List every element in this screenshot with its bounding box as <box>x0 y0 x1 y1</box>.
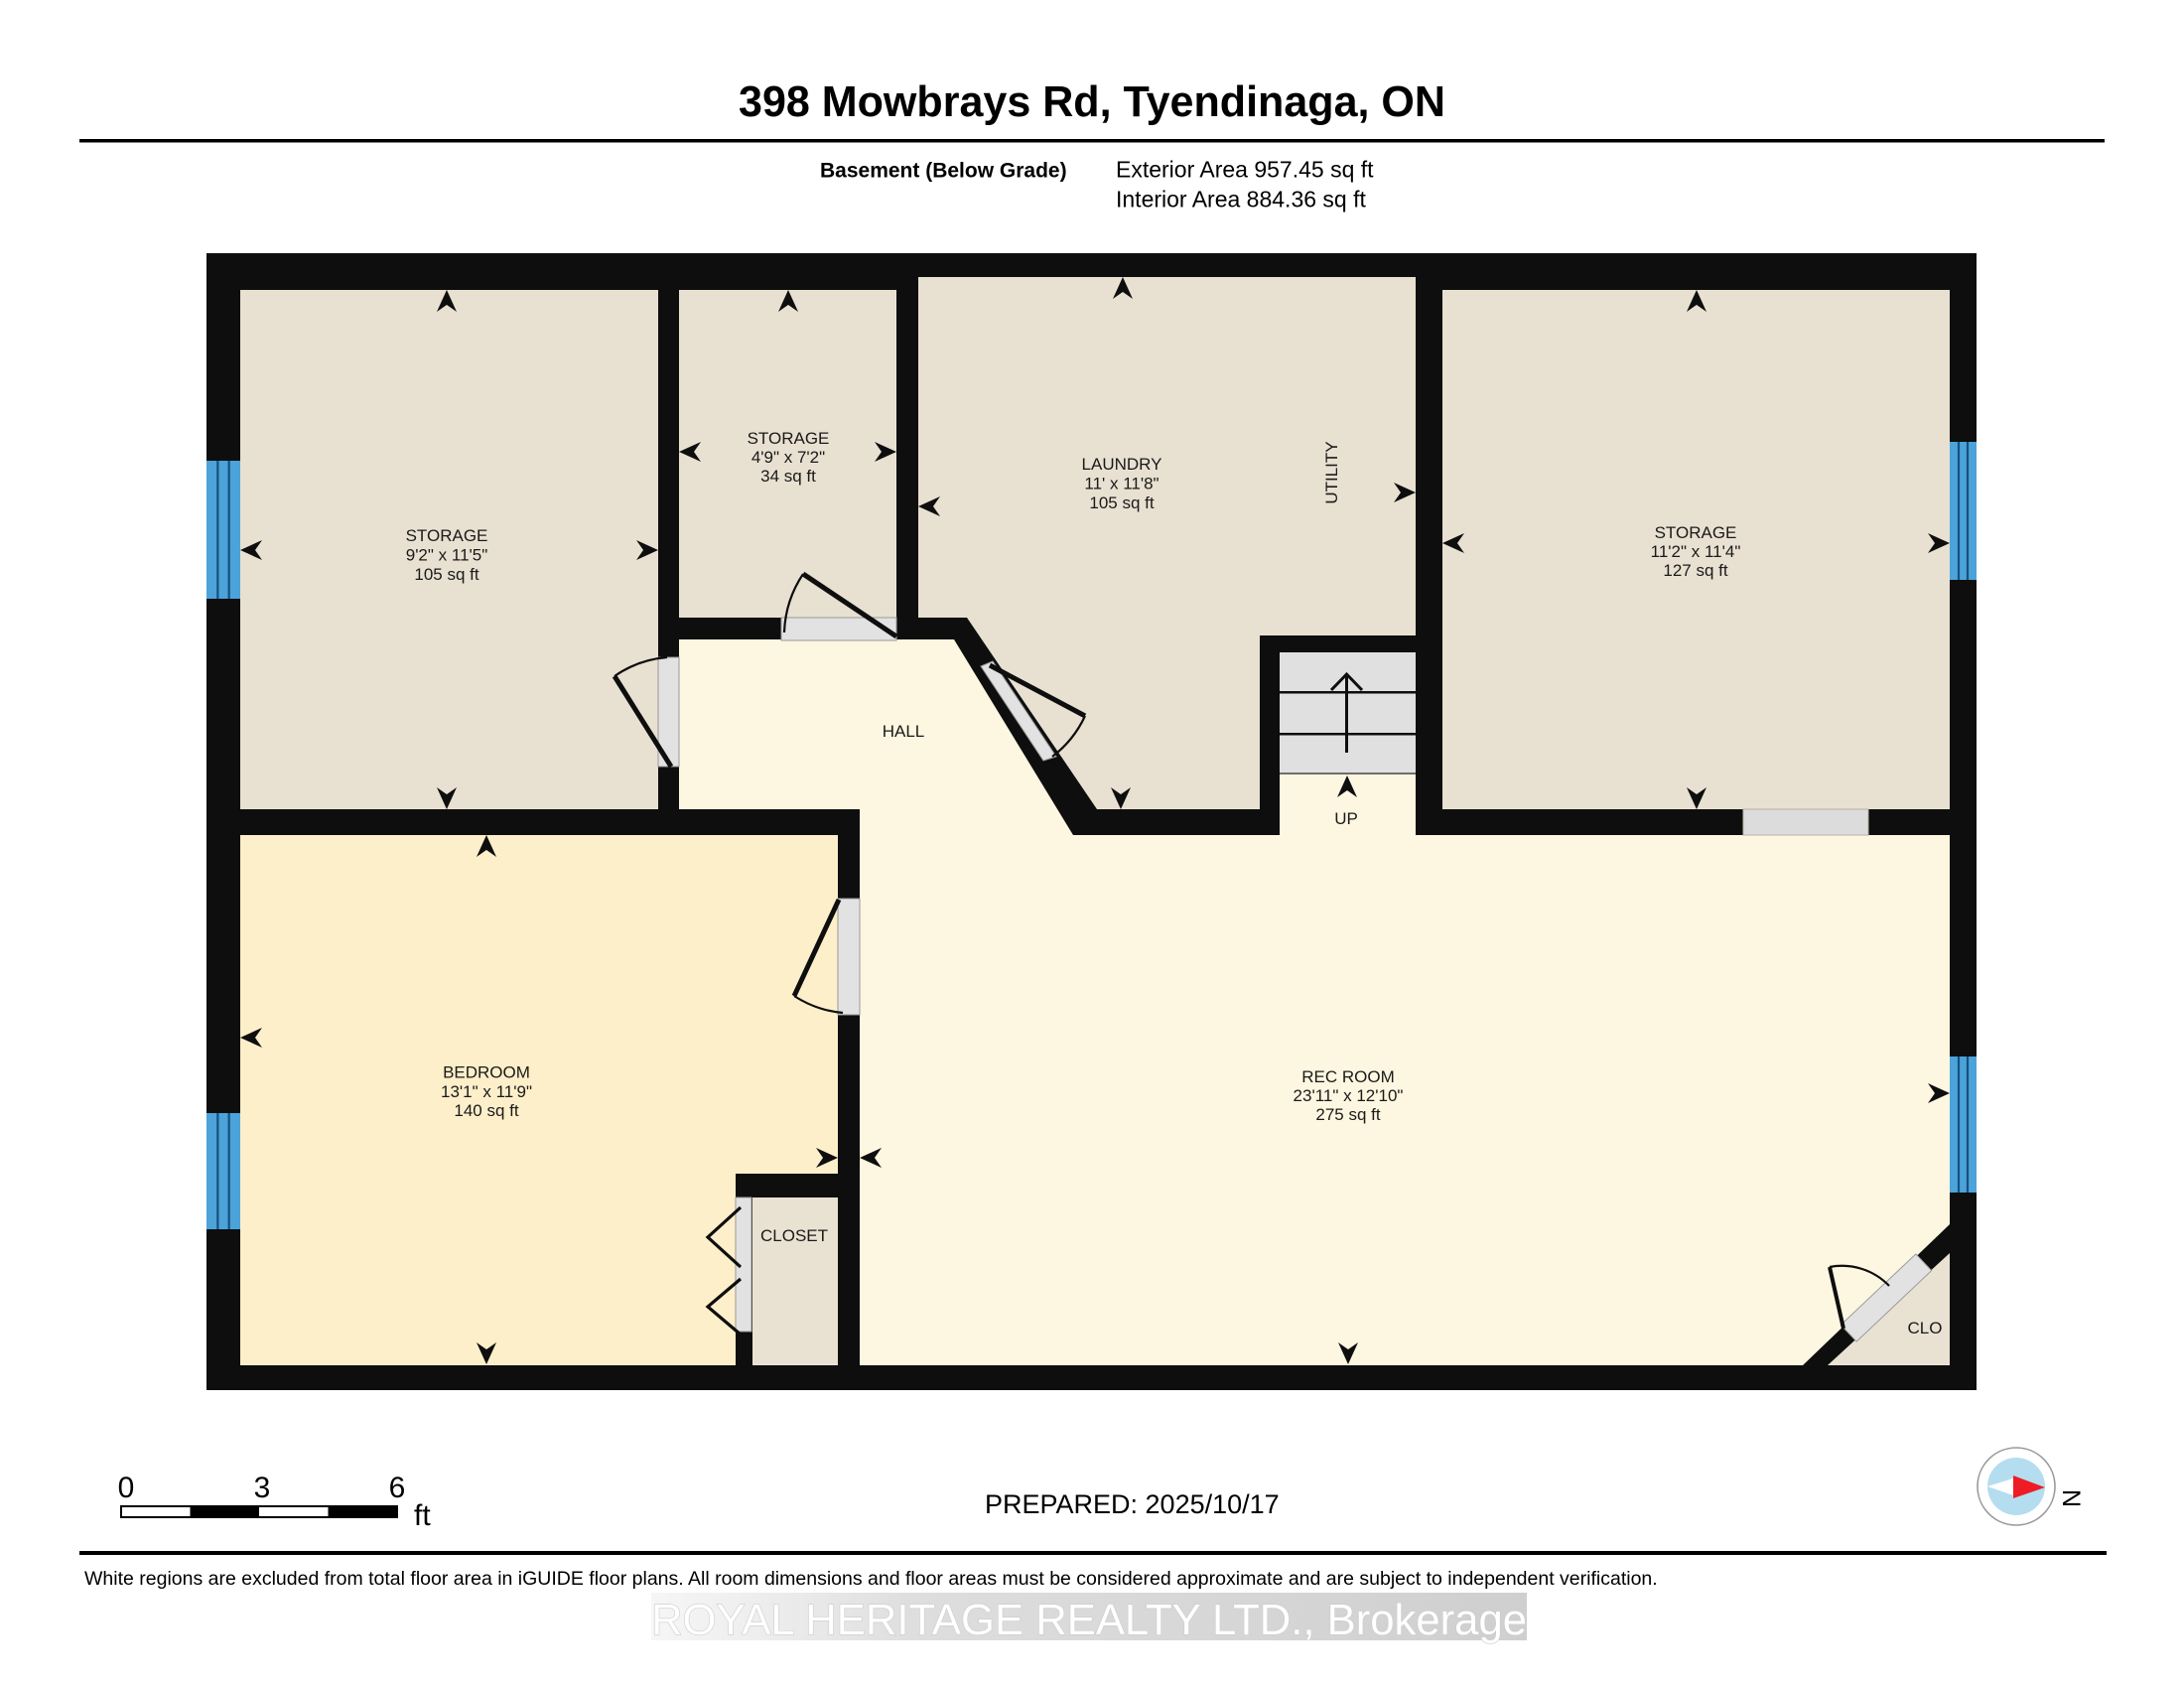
svg-text:CLO: CLO <box>1908 1319 1943 1337</box>
svg-text:105 sq ft: 105 sq ft <box>414 565 478 584</box>
svg-text:105 sq ft: 105 sq ft <box>1089 493 1154 512</box>
svg-text:0: 0 <box>118 1472 135 1504</box>
svg-text:UTILITY: UTILITY <box>1322 441 1341 503</box>
svg-text:127 sq ft: 127 sq ft <box>1663 561 1727 580</box>
svg-text:HALL: HALL <box>883 722 925 741</box>
svg-text:ROYAL HERITAGE REALTY LTD., Br: ROYAL HERITAGE REALTY LTD., Brokerage <box>651 1596 1527 1644</box>
svg-text:3: 3 <box>254 1472 271 1504</box>
svg-text:PREPARED: 2025/10/17: PREPARED: 2025/10/17 <box>985 1489 1280 1519</box>
svg-text:LAUNDRY: LAUNDRY <box>1082 455 1162 474</box>
svg-text:23'11" x 12'10": 23'11" x 12'10" <box>1294 1086 1404 1105</box>
svg-text:BEDROOM: BEDROOM <box>443 1063 530 1082</box>
svg-text:Exterior Area 957.45 sq ft: Exterior Area 957.45 sq ft <box>1116 157 1374 183</box>
svg-text:N: N <box>2057 1489 2085 1507</box>
svg-text:STORAGE: STORAGE <box>1655 523 1737 542</box>
svg-text:11'2" x 11'4": 11'2" x 11'4" <box>1651 542 1741 561</box>
svg-text:REC ROOM: REC ROOM <box>1301 1067 1395 1086</box>
svg-text:ft: ft <box>414 1499 431 1532</box>
svg-text:6: 6 <box>389 1472 406 1504</box>
svg-text:STORAGE: STORAGE <box>748 429 830 448</box>
svg-text:4'9" x 7'2": 4'9" x 7'2" <box>751 448 825 467</box>
svg-text:275 sq ft: 275 sq ft <box>1315 1105 1380 1124</box>
svg-text:9'2" x 11'5": 9'2" x 11'5" <box>406 546 488 565</box>
svg-text:13'1" x 11'9": 13'1" x 11'9" <box>441 1082 532 1101</box>
svg-text:Interior Area 884.36 sq ft: Interior Area 884.36 sq ft <box>1116 187 1366 212</box>
svg-text:CLOSET: CLOSET <box>760 1226 828 1245</box>
svg-text:Basement (Below Grade): Basement (Below Grade) <box>820 160 1067 183</box>
svg-text:STORAGE: STORAGE <box>406 526 488 545</box>
svg-text:34 sq ft: 34 sq ft <box>760 467 816 486</box>
svg-text:398 Mowbrays Rd, Tyendinaga, O: 398 Mowbrays Rd, Tyendinaga, ON <box>739 77 1445 126</box>
svg-text:11' x 11'8": 11' x 11'8" <box>1084 475 1159 493</box>
svg-text:White regions are excluded fro: White regions are excluded from total fl… <box>84 1568 1658 1590</box>
svg-text:140 sq ft: 140 sq ft <box>454 1101 518 1120</box>
svg-text:UP: UP <box>1334 809 1358 828</box>
